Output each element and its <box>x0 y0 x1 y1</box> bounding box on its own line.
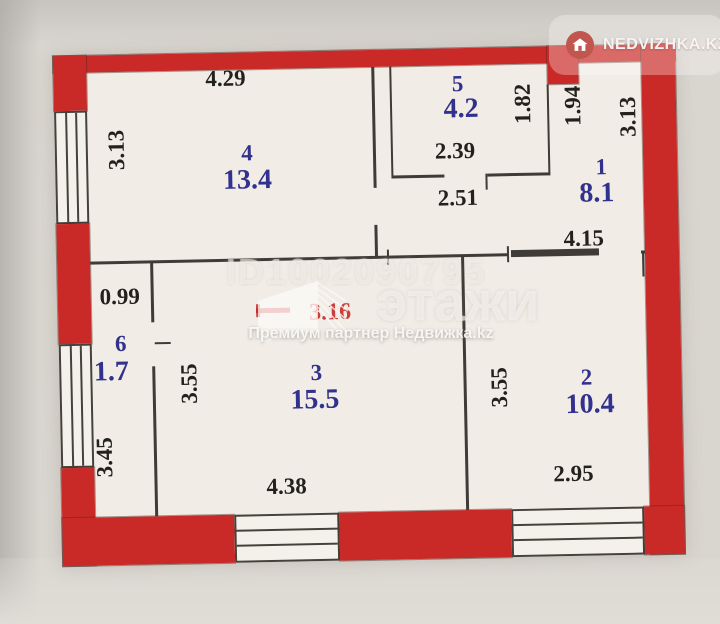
plan-paper <box>53 44 685 566</box>
dim-room2-height: 3.55 <box>486 367 513 408</box>
dim-room1-height-right: 3.13 <box>615 96 642 137</box>
nedvizhka-badge: NEDVIZHKA.KZ <box>549 15 720 75</box>
room-4-area: 13.4 <box>223 164 273 197</box>
etazhi-brand: этажи <box>377 269 540 334</box>
room-5-area: 4.2 <box>443 93 479 126</box>
room-2-number: 2 <box>580 365 592 391</box>
dim-room5-width: 2.39 <box>435 138 476 165</box>
dim-top-width: 4.29 <box>205 65 246 92</box>
room-4-number: 4 <box>241 140 253 166</box>
door-mark <box>155 342 171 344</box>
dim-room4-height: 3.13 <box>103 130 130 171</box>
room-6-number: 6 <box>115 331 127 357</box>
floor-plan: 3.16 4.29 3.13 2.39 1.82 2.51 1.94 3.13 … <box>53 44 685 566</box>
dim-room2-width: 2.95 <box>553 461 594 488</box>
wall-segment-bottom <box>339 509 512 560</box>
dim-room3-width: 4.38 <box>266 473 307 500</box>
window-symbol <box>234 513 340 563</box>
etazhi-subtitle: Премиум партнер Недвижка.kz <box>248 325 493 343</box>
wall-segment-left <box>53 56 87 112</box>
photo-background-left <box>0 0 40 624</box>
room-3-area: 15.5 <box>290 384 340 417</box>
dimension-tick <box>507 246 509 262</box>
window-symbol <box>511 507 645 558</box>
room-6-area: 1.7 <box>93 356 129 389</box>
house-icon <box>566 31 594 59</box>
room-3-number: 3 <box>310 360 322 386</box>
wall-segment-bottom <box>62 515 235 566</box>
room-2-area: 10.4 <box>565 388 615 421</box>
dim-room6-height: 3.45 <box>92 437 119 478</box>
dim-room6-width: 0.99 <box>99 284 140 311</box>
nedvizhka-label: NEDVIZHKA.KZ <box>603 36 720 54</box>
dim-room5-height: 1.82 <box>510 83 537 124</box>
dim-room1-width: 4.15 <box>563 225 604 252</box>
wall-segment-left <box>56 224 91 345</box>
dim-room3-height: 3.55 <box>176 363 203 404</box>
wall-segment-bottom <box>644 506 685 555</box>
window-symbol <box>59 344 94 469</box>
door-mark <box>485 174 487 190</box>
dim-room1-height-left: 1.94 <box>560 85 587 126</box>
photo-background-bottom <box>0 558 720 624</box>
room-1-area: 8.1 <box>579 177 615 210</box>
window-symbol <box>54 111 89 225</box>
dim-hall-width: 2.51 <box>437 185 478 212</box>
